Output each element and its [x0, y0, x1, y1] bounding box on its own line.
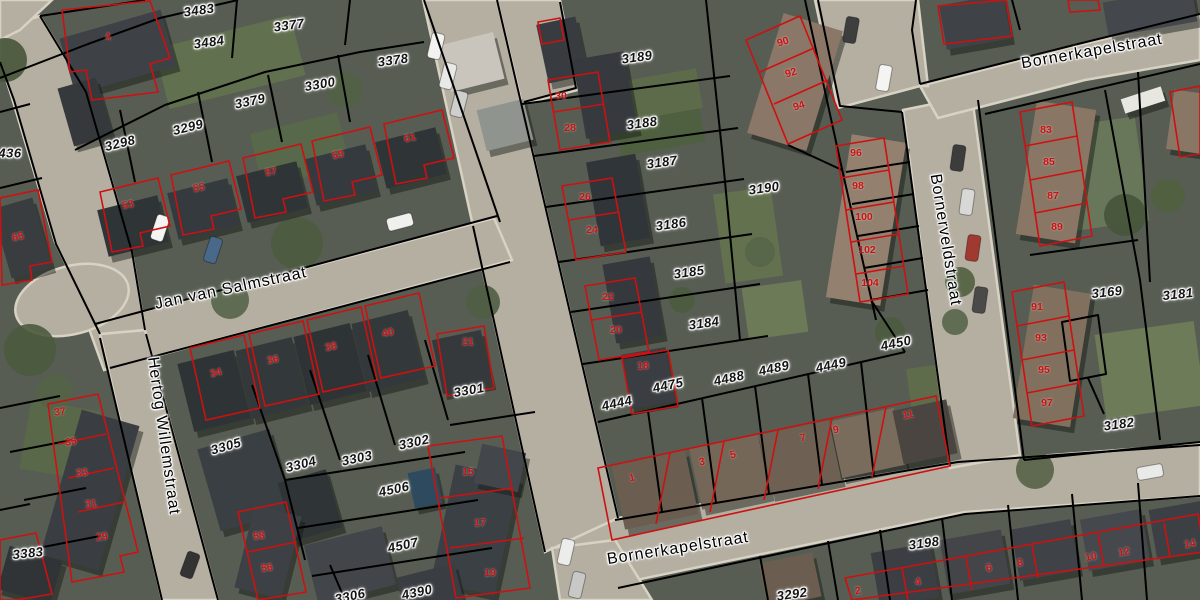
tree [669, 287, 695, 313]
tree [875, 317, 905, 347]
map-viewport[interactable]: 3483348433773378330033793299329843631893… [0, 0, 1200, 600]
grass-patch [742, 280, 809, 340]
building-roof [1011, 519, 1079, 581]
building-roof [1149, 501, 1200, 560]
tree [37, 374, 73, 410]
tree [271, 217, 323, 269]
tree [942, 309, 968, 335]
tree [945, 267, 975, 297]
tree [4, 324, 56, 376]
tree [1151, 179, 1185, 213]
tree [466, 285, 500, 319]
building-roof [1080, 509, 1150, 571]
aerial-map-canvas [0, 0, 1200, 600]
tree [745, 237, 775, 267]
